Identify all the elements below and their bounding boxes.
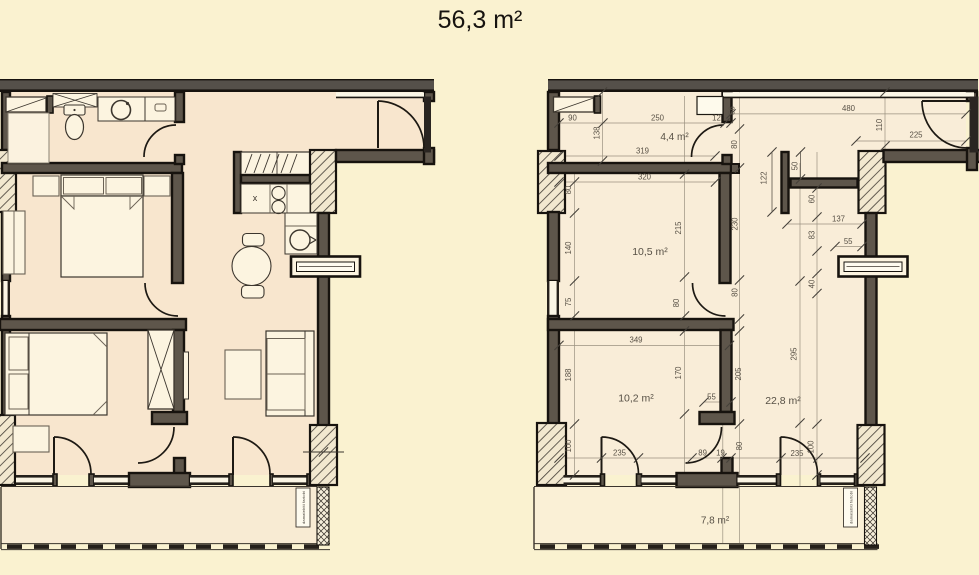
svg-text:89: 89 <box>698 449 707 458</box>
svg-text:320: 320 <box>638 173 652 182</box>
svg-text:40: 40 <box>808 279 817 288</box>
svg-text:110: 110 <box>875 118 884 131</box>
svg-text:x: x <box>253 193 258 203</box>
svg-text:100: 100 <box>807 440 816 454</box>
svg-text:55: 55 <box>844 237 853 246</box>
svg-text:80: 80 <box>731 288 740 297</box>
svg-text:56,3 m²: 56,3 m² <box>438 6 523 34</box>
svg-text:83: 83 <box>808 231 817 240</box>
svg-text:10,5 m²: 10,5 m² <box>632 246 668 258</box>
svg-text:22,8 m²: 22,8 m² <box>765 395 801 407</box>
svg-text:138: 138 <box>593 126 602 139</box>
svg-text:80: 80 <box>564 185 573 194</box>
svg-text:80: 80 <box>730 140 739 149</box>
svg-text:50: 50 <box>791 161 800 170</box>
svg-text:122: 122 <box>760 171 769 184</box>
svg-text:215: 215 <box>674 221 683 235</box>
svg-text:75: 75 <box>564 297 573 306</box>
svg-text:80: 80 <box>735 441 744 450</box>
svg-text:60: 60 <box>808 194 817 203</box>
svg-text:295: 295 <box>790 347 799 361</box>
svg-text:319: 319 <box>636 147 649 156</box>
svg-text:250: 250 <box>651 114 665 123</box>
svg-text:90: 90 <box>568 114 577 123</box>
svg-text:235: 235 <box>790 449 804 458</box>
svg-text:12: 12 <box>712 114 721 123</box>
svg-text:205: 205 <box>734 367 743 381</box>
svg-text:damatebiti fartobi: damatebiti fartobi <box>301 491 306 524</box>
svg-text:damatebiti fartobi: damatebiti fartobi <box>849 491 854 524</box>
svg-text:225: 225 <box>909 131 923 140</box>
svg-text:100: 100 <box>564 439 573 453</box>
svg-text:349: 349 <box>629 336 642 345</box>
svg-text:235: 235 <box>613 449 627 458</box>
svg-text:140: 140 <box>564 241 573 255</box>
svg-text:7,8 m²: 7,8 m² <box>701 516 730 527</box>
svg-text:170: 170 <box>674 366 683 380</box>
svg-text:80: 80 <box>672 298 681 307</box>
svg-text:4,4 m²: 4,4 m² <box>660 132 689 143</box>
svg-text:56: 56 <box>728 106 737 115</box>
svg-text:10,2 m²: 10,2 m² <box>618 393 654 405</box>
svg-text:480: 480 <box>842 104 856 113</box>
svg-text:55: 55 <box>707 393 716 402</box>
svg-text:188: 188 <box>564 368 573 381</box>
svg-text:230: 230 <box>731 217 740 231</box>
svg-text:19: 19 <box>716 448 725 457</box>
svg-text:137: 137 <box>832 215 845 224</box>
